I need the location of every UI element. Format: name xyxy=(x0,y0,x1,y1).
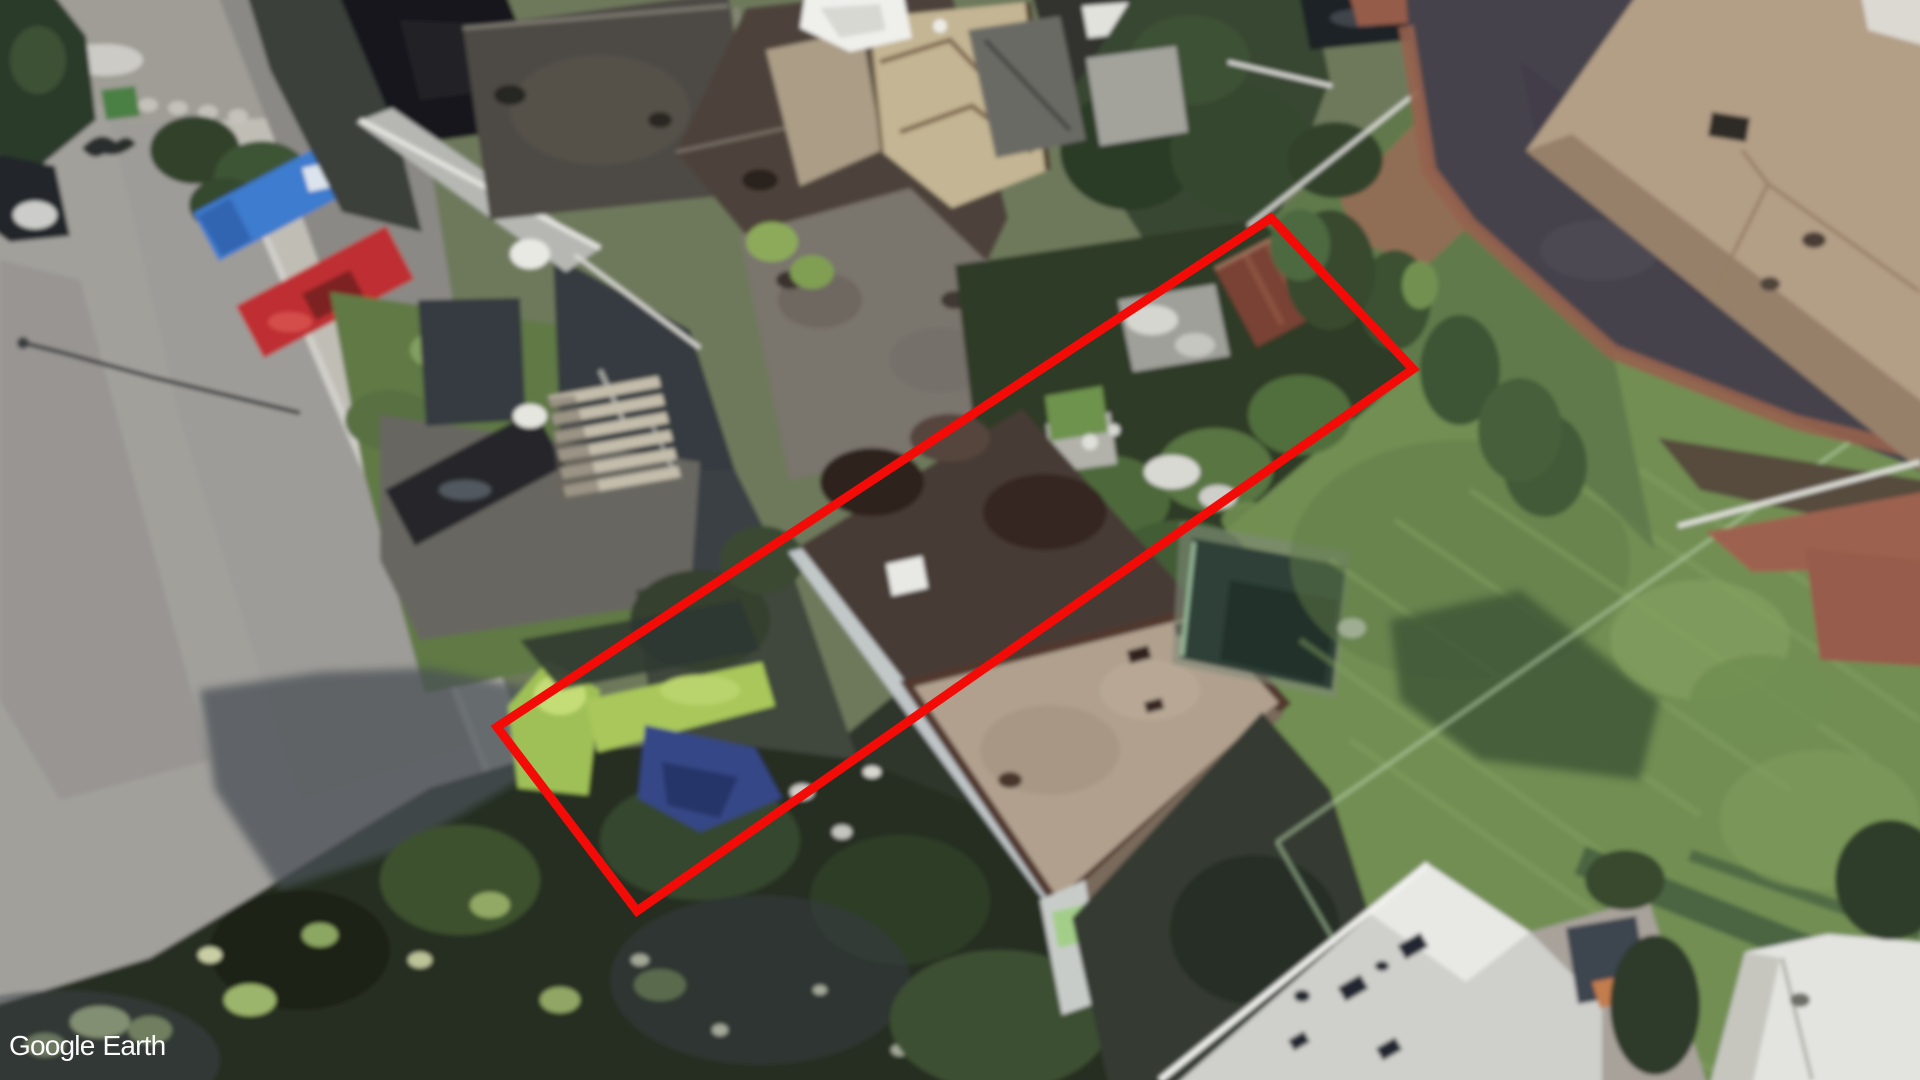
svg-text:Google Earth: Google Earth xyxy=(9,1030,165,1061)
